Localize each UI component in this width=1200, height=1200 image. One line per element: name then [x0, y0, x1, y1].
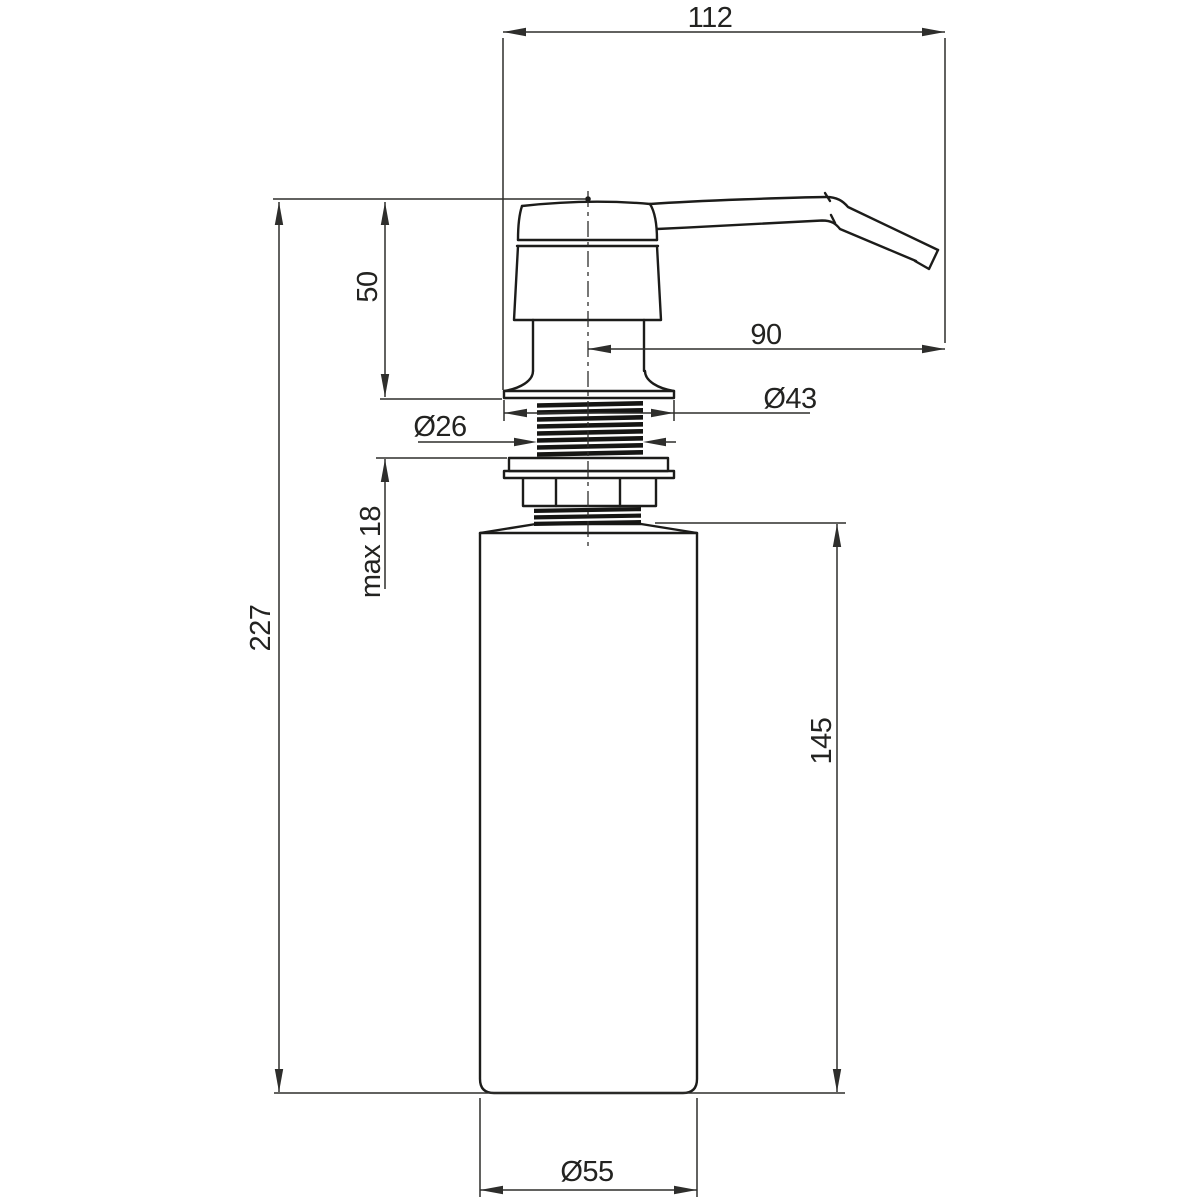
- dim-spout-reach: 90: [588, 319, 945, 353]
- soap-dispenser-technical-drawing: 112 90 50 max 18 227 145: [0, 0, 1200, 1200]
- dim-bottle-height: 145: [655, 523, 846, 1092]
- dim-flange-diameter-label: Ø43: [763, 383, 816, 415]
- dim-flange-diameter: Ø43: [504, 383, 817, 421]
- dim-max-counter-thickness: max 18: [355, 458, 507, 598]
- mounting-thread: [537, 401, 643, 457]
- dim-bottle-diameter: Ø55: [480, 1098, 697, 1197]
- dim-bottle-diameter-label: Ø55: [560, 1156, 613, 1188]
- spout: [650, 193, 938, 269]
- bottle-body-outline: [480, 533, 697, 1093]
- dim-head-height-label: 50: [352, 271, 384, 302]
- dim-total-height-label: 227: [245, 605, 277, 652]
- dim-spout-reach-label: 90: [750, 319, 781, 351]
- hex-nut: [523, 477, 656, 506]
- dim-head-height: 50: [273, 199, 586, 399]
- dim-overall-width-label: 112: [688, 2, 733, 34]
- drawing-canvas: 112 90 50 max 18 227 145: [0, 0, 1200, 1200]
- dim-thread-diameter-label: Ø26: [413, 411, 466, 443]
- dim-bottle-height-label: 145: [806, 718, 838, 765]
- washer: [504, 458, 674, 478]
- dim-overall-width: 112: [503, 2, 945, 390]
- mounting-flange: [504, 371, 674, 398]
- center-reference-dot: [585, 196, 591, 202]
- dim-max-counter-thickness-label: max 18: [355, 506, 387, 598]
